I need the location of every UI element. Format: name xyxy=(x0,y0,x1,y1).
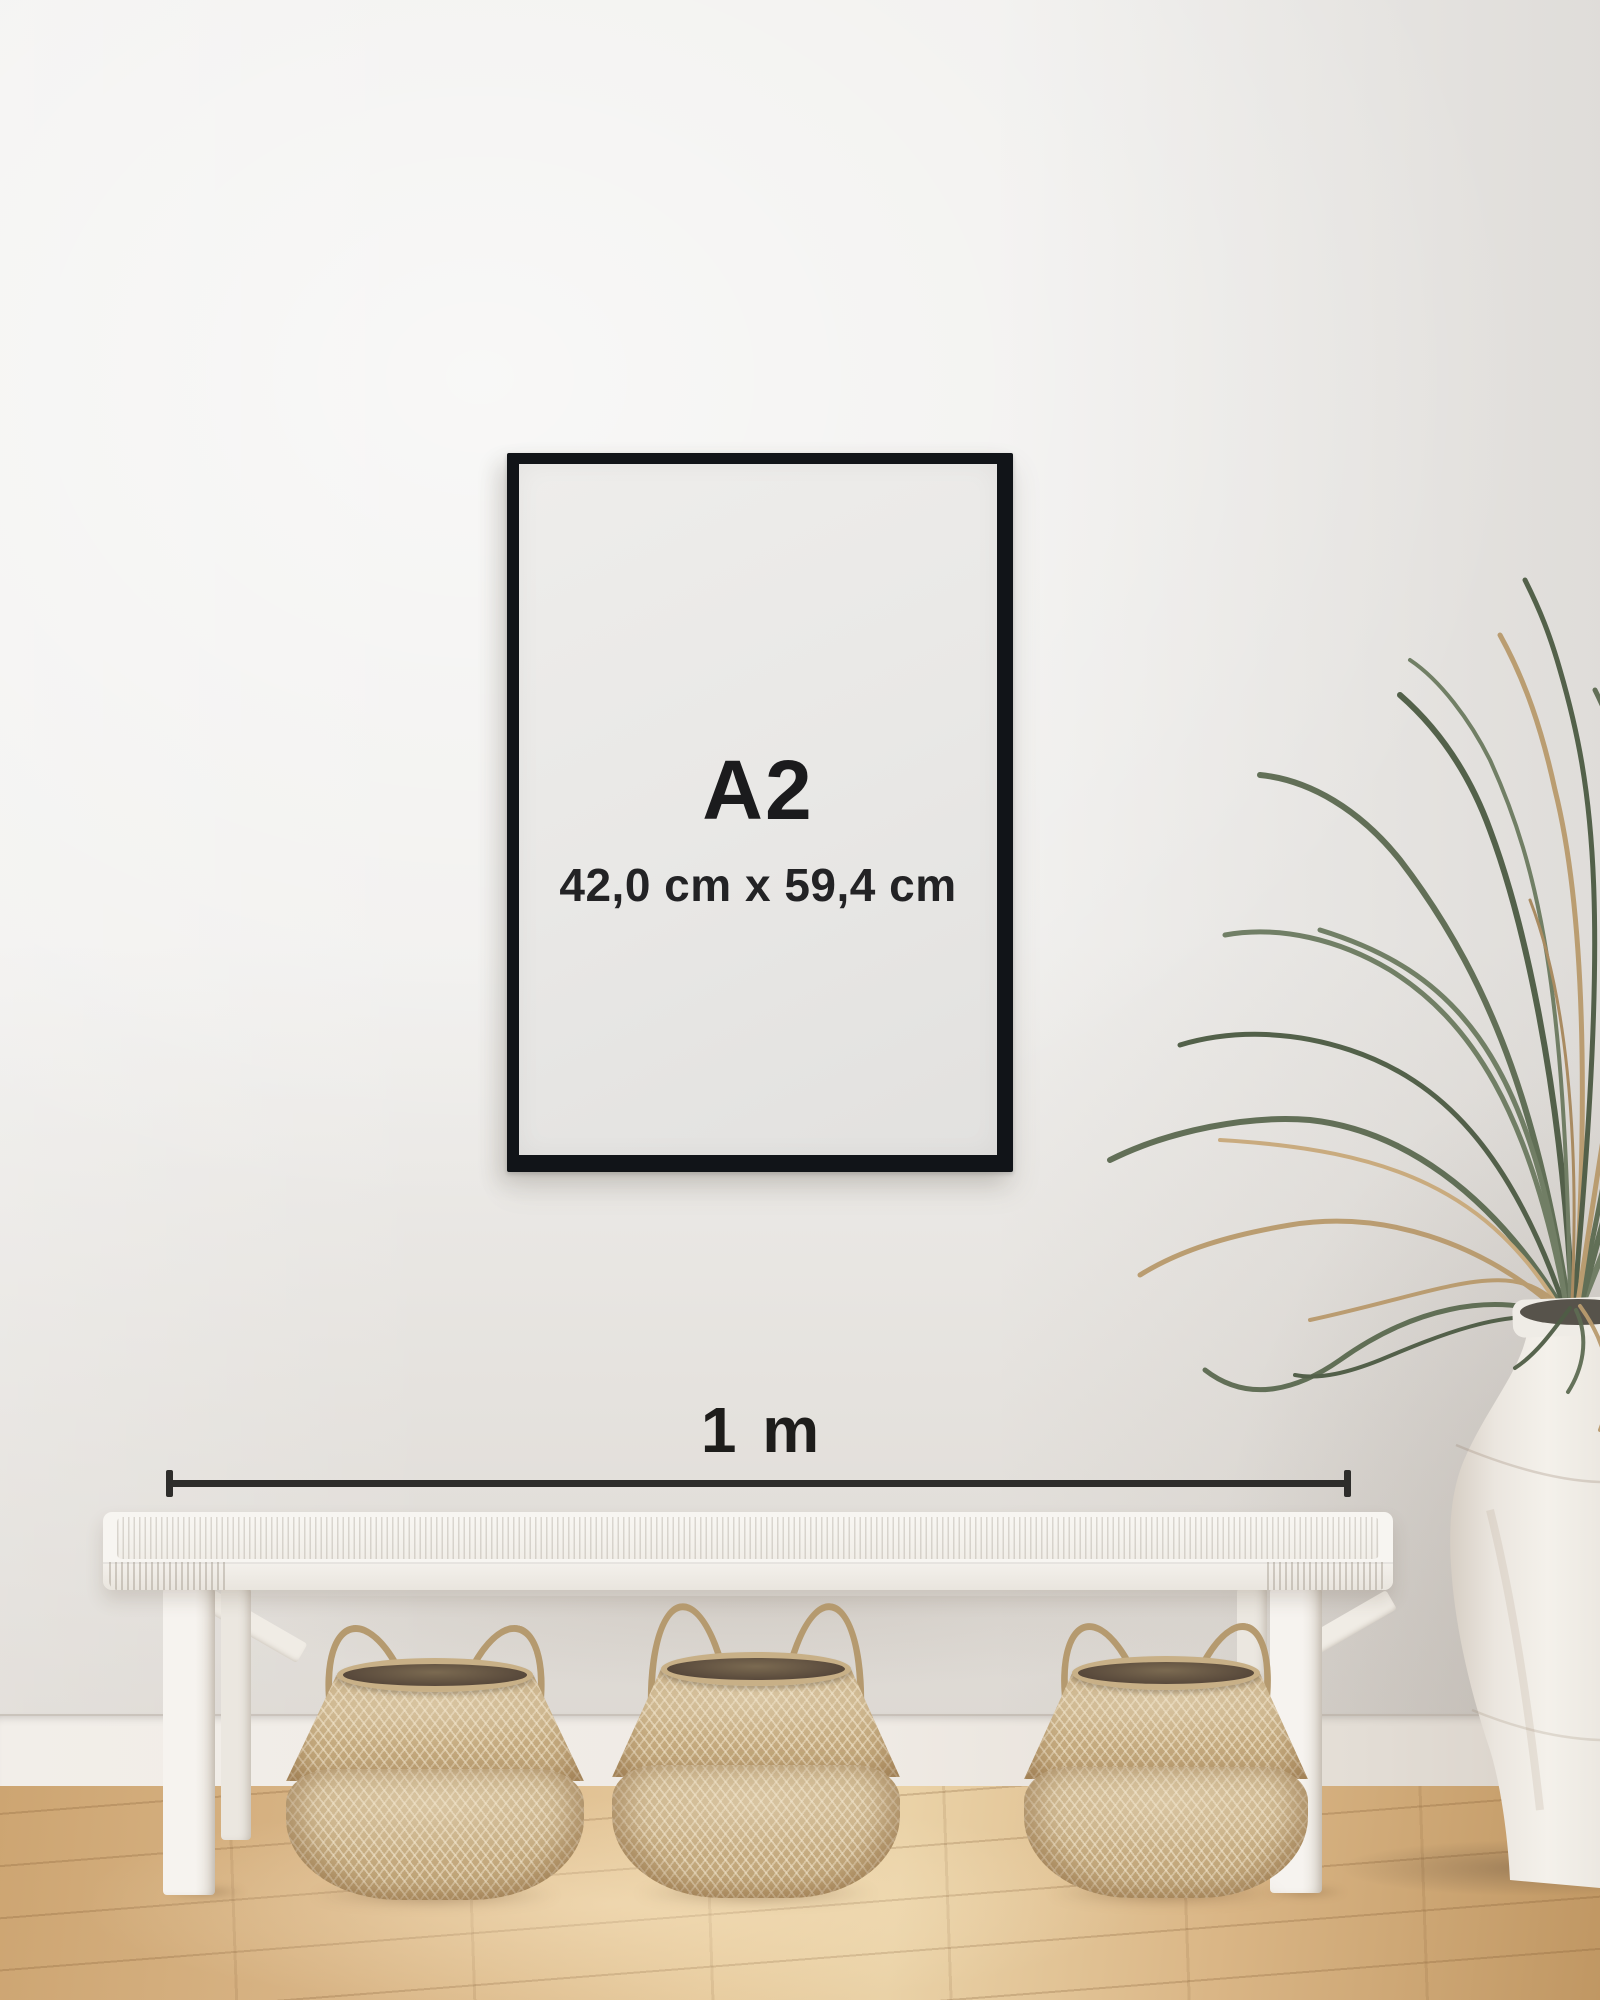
palm-plant-and-vase xyxy=(1020,430,1600,1900)
poster: A2 42,0 cm x 59,4 cm xyxy=(519,464,997,1155)
basket-body-lower xyxy=(286,1769,584,1900)
poster-content: A2 42,0 cm x 59,4 cm xyxy=(519,464,997,1155)
poster-dimensions-label: 42,0 cm x 59,4 cm xyxy=(559,862,956,908)
bench-leg-left-rear xyxy=(221,1588,251,1840)
bench-leg-left-front xyxy=(163,1588,215,1895)
palm-leaves-icon xyxy=(1110,580,1600,1390)
bench-weave-wrap-left xyxy=(109,1562,229,1590)
poster-frame: A2 42,0 cm x 59,4 cm xyxy=(507,453,1013,1172)
ceramic-vase xyxy=(1450,1296,1600,1888)
basket-2 xyxy=(612,1652,900,1898)
basket-rim-opening xyxy=(337,1658,534,1692)
vase-body xyxy=(1450,1328,1600,1888)
scale-bar-label: 1 m xyxy=(701,1398,823,1462)
poster-size-label: A2 xyxy=(702,748,813,832)
scale-bar-tick-left xyxy=(166,1470,173,1497)
basket-body-lower xyxy=(612,1765,900,1898)
basket-1 xyxy=(286,1658,584,1900)
size-guide-mockup: A2 42,0 cm x 59,4 cm 1 m xyxy=(0,0,1600,2000)
